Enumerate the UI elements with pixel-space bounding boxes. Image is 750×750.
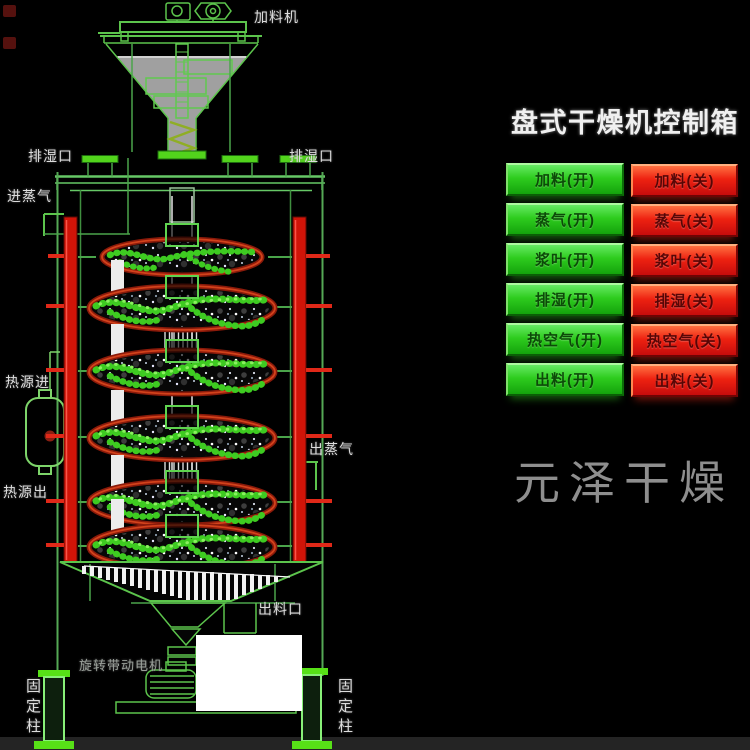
label-heat-out: 热源出 [3, 482, 48, 502]
moisture-vent-port-left [82, 156, 118, 177]
drying-disc-top [48, 224, 330, 275]
label-steam-in: 进蒸气 [7, 186, 52, 206]
discharge-on-button[interactable]: 出料(开) [506, 363, 624, 396]
screenshot-root: 加料机 排湿口 排湿口 进蒸气 热源进 热源出 出蒸气 出料口 旋转带动电机 固… [0, 0, 750, 750]
top-port-center [222, 156, 258, 177]
panel-title: 盘式干燥机控制箱 [500, 101, 750, 140]
watermark-text: 元泽干燥 [514, 447, 734, 513]
label-steam-out: 出蒸气 [309, 439, 354, 459]
vent-on-button[interactable]: 排湿(开) [506, 283, 624, 316]
steam-on-button[interactable]: 蒸气(开) [506, 203, 624, 236]
dryer-diagram [0, 0, 440, 750]
feed-on-button[interactable]: 加料(开) [506, 163, 624, 196]
white-box [196, 635, 302, 711]
label-feeder: 加料机 [254, 7, 299, 27]
label-fixed-column-right: 固定柱 [334, 678, 355, 738]
label-vent-left: 排湿口 [28, 146, 73, 166]
paddle-off-button[interactable]: 浆叶(关) [631, 244, 738, 277]
paddle-on-button[interactable]: 浆叶(开) [506, 243, 624, 276]
label-fixed-column-left: 固定柱 [22, 678, 43, 738]
label-vent-right: 排湿口 [289, 146, 334, 166]
label-discharge: 出料口 [258, 599, 303, 619]
red-mark [3, 5, 16, 17]
vent-off-button[interactable]: 排湿(关) [631, 284, 738, 317]
hot-air-on-button[interactable]: 热空气(开) [506, 323, 624, 356]
feed-hopper [100, 36, 262, 159]
label-motor: 旋转带动电机 [79, 655, 163, 674]
on-button-column: 加料(开) 蒸气(开) 浆叶(开) 排湿(开) 热空气(开) 出料(开) [506, 163, 624, 403]
off-button-column: 加料(关) 蒸气(关) 浆叶(关) 排湿(关) 热空气(关) 出料(关) [631, 164, 738, 404]
hot-air-off-button[interactable]: 热空气(关) [631, 324, 738, 357]
vessel-lid [55, 156, 325, 191]
feed-off-button[interactable]: 加料(关) [631, 164, 738, 197]
steam-off-button[interactable]: 蒸气(关) [631, 204, 738, 237]
label-heat-in: 热源进 [5, 372, 50, 392]
red-mark [3, 37, 16, 49]
bottom-cone [60, 562, 323, 603]
discharge-off-button[interactable]: 出料(关) [631, 364, 738, 397]
